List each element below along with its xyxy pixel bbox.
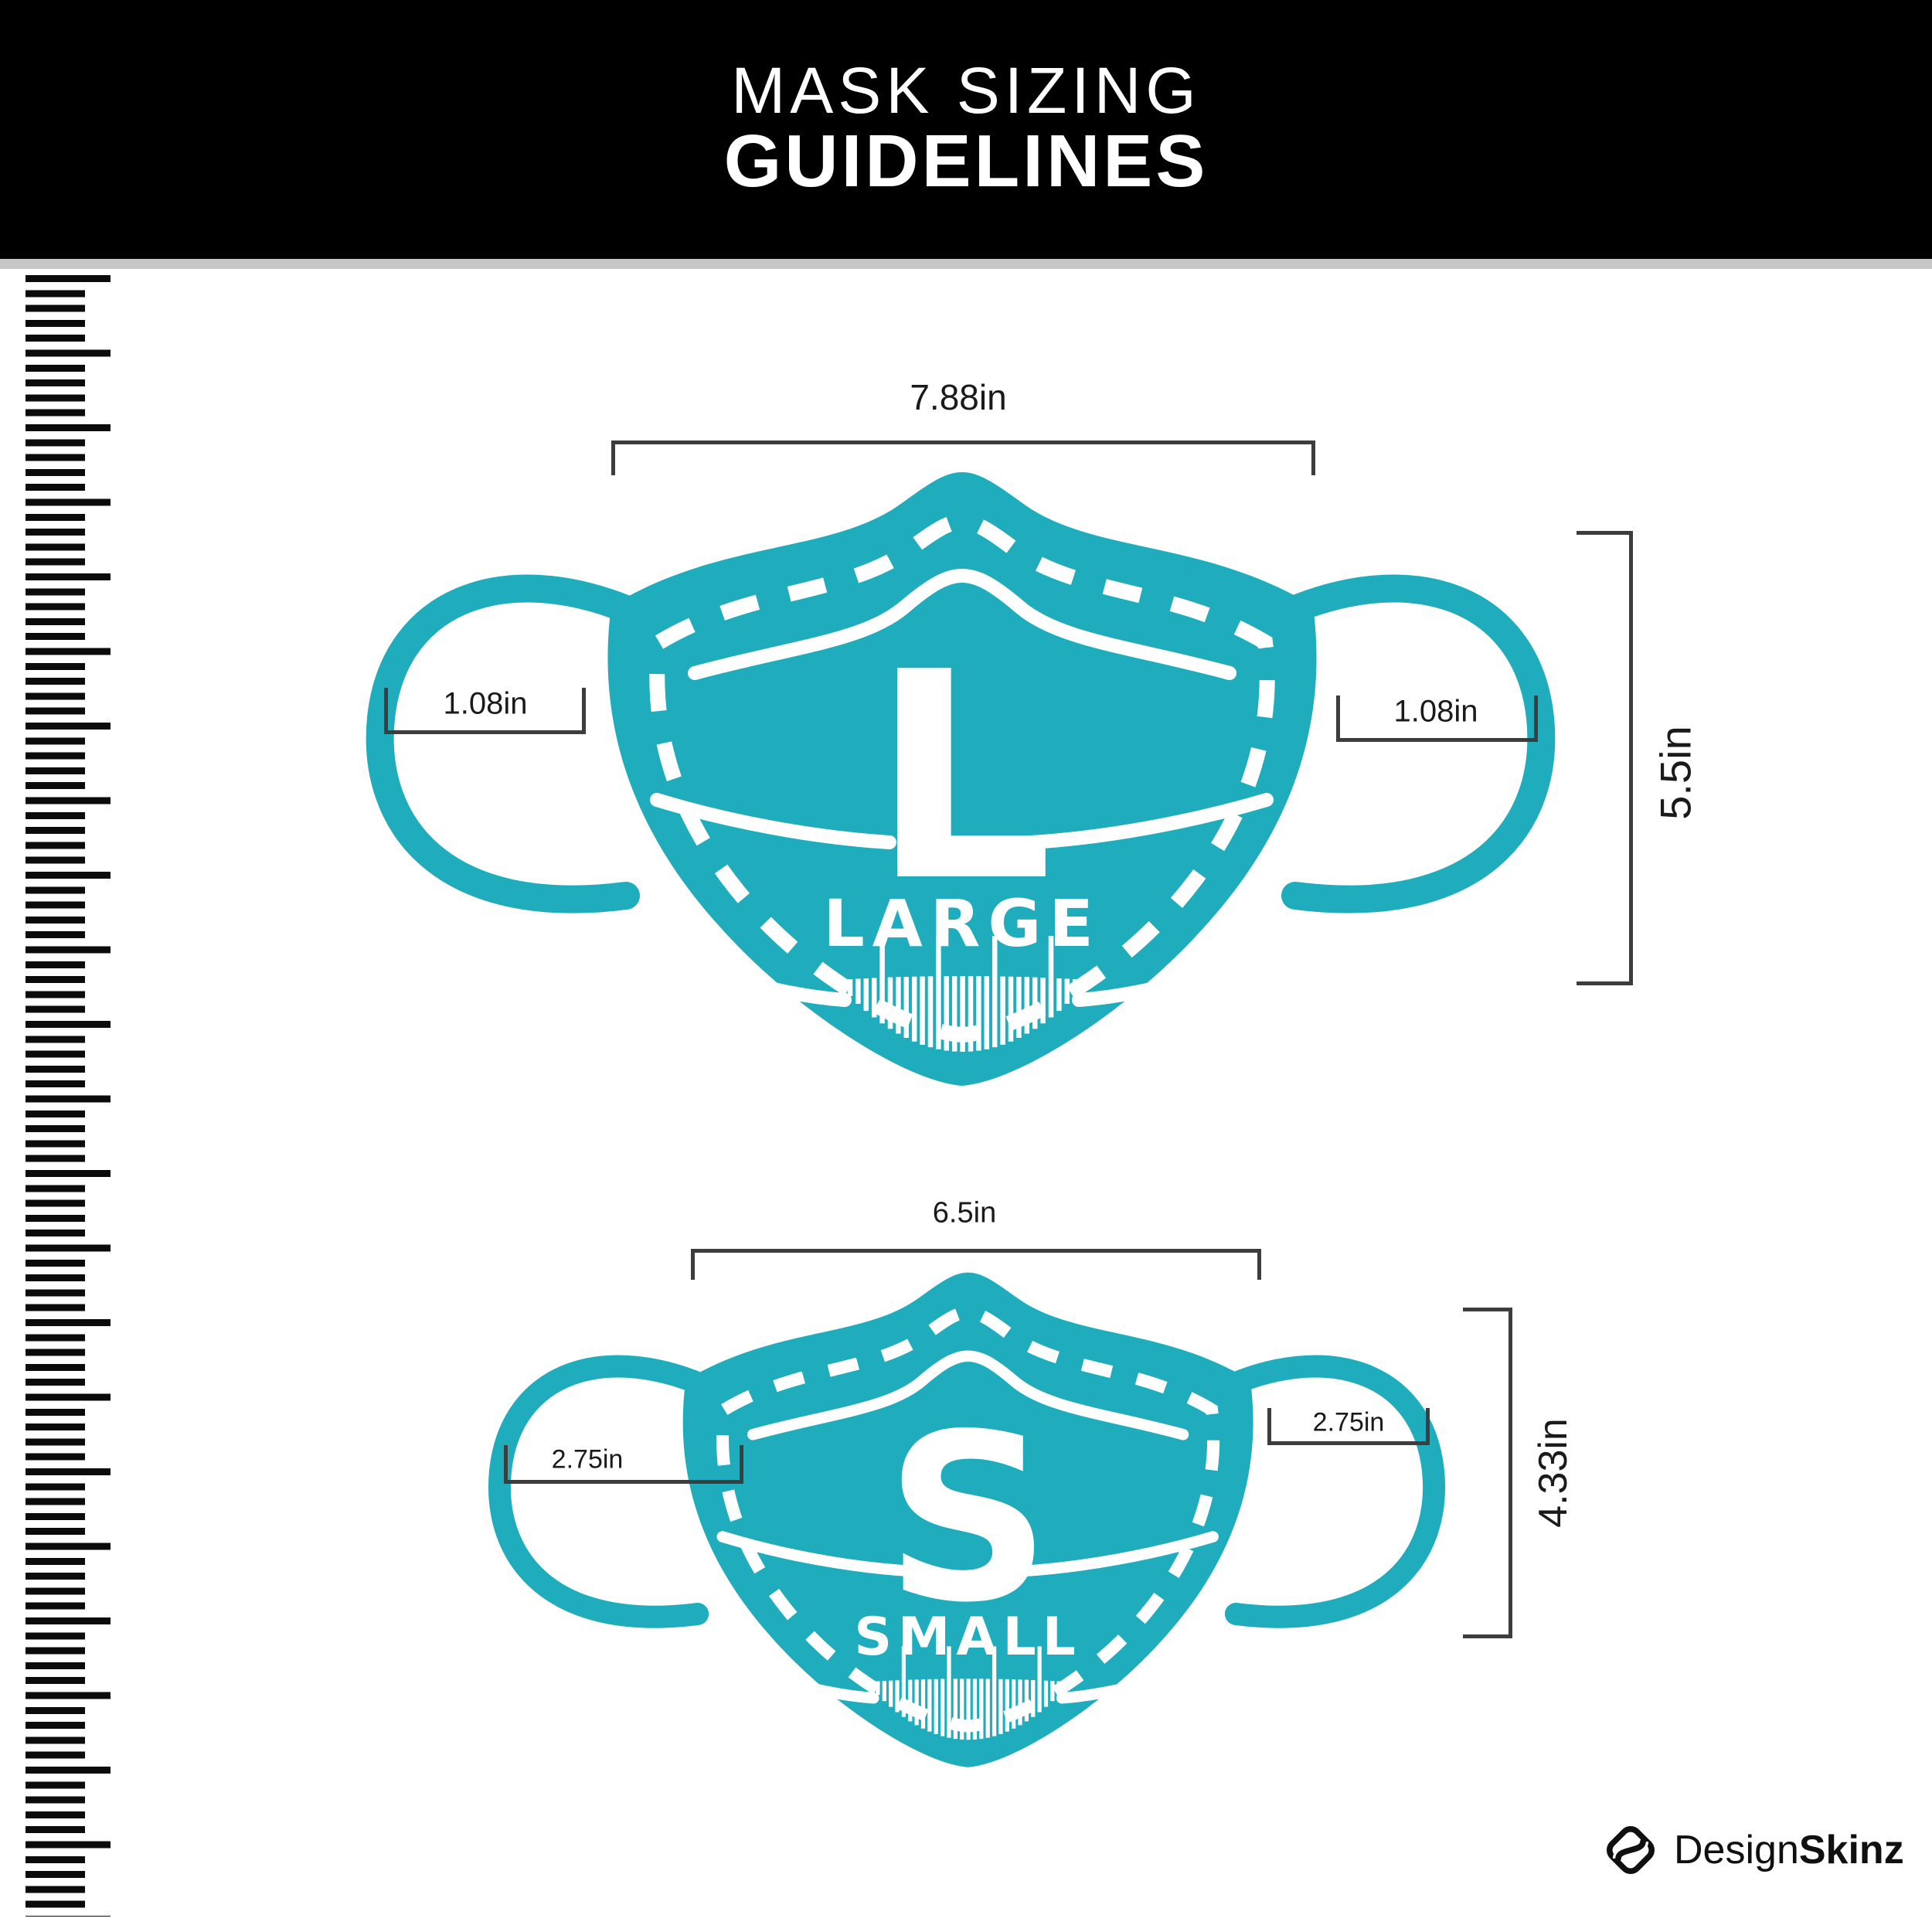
large-left-ear-bracket	[384, 688, 586, 734]
large-mask-size-word: LARGE	[823, 886, 1101, 961]
small-height-label: 4.33in	[1530, 1418, 1577, 1528]
small-right-ear-bracket	[1267, 1408, 1430, 1445]
small-left-ear-bracket	[504, 1445, 743, 1484]
small-mask-left-ear-loop	[499, 1366, 713, 1617]
page-title-line1: MASK SIZING	[731, 58, 1200, 123]
large-right-ear-bracket	[1336, 696, 1538, 742]
designskinz-icon	[1598, 1818, 1663, 1883]
large-width-label: 7.88in	[910, 376, 1006, 418]
large-height-bracket	[1577, 531, 1633, 985]
divider-strip	[0, 259, 1932, 269]
large-mask-left-ear-loop	[380, 588, 645, 899]
small-mask-illustration: S SMALL	[483, 1265, 1451, 1770]
small-height-bracket	[1463, 1308, 1512, 1638]
brand-logo: DesignSkinz	[1598, 1818, 1904, 1883]
brand-name: DesignSkinz	[1674, 1827, 1904, 1873]
small-width-bracket	[691, 1249, 1261, 1280]
brand-name-bold: Skinz	[1799, 1828, 1904, 1872]
mask-sizing-infographic: MASK SIZING GUIDELINES L LARGE 7.88in 1.…	[0, 0, 1932, 1932]
brand-name-regular: Design	[1674, 1828, 1799, 1872]
large-width-bracket	[611, 440, 1315, 475]
small-width-label: 6.5in	[933, 1197, 996, 1230]
ruler-graphic	[26, 275, 136, 1917]
header-banner: MASK SIZING GUIDELINES	[0, 0, 1932, 259]
small-mask-size-word: SMALL	[854, 1606, 1082, 1667]
large-mask-illustration: L LARGE	[359, 463, 1562, 1089]
page-title-line2: GUIDELINES	[724, 123, 1209, 201]
large-height-label: 5.5in	[1651, 726, 1701, 819]
